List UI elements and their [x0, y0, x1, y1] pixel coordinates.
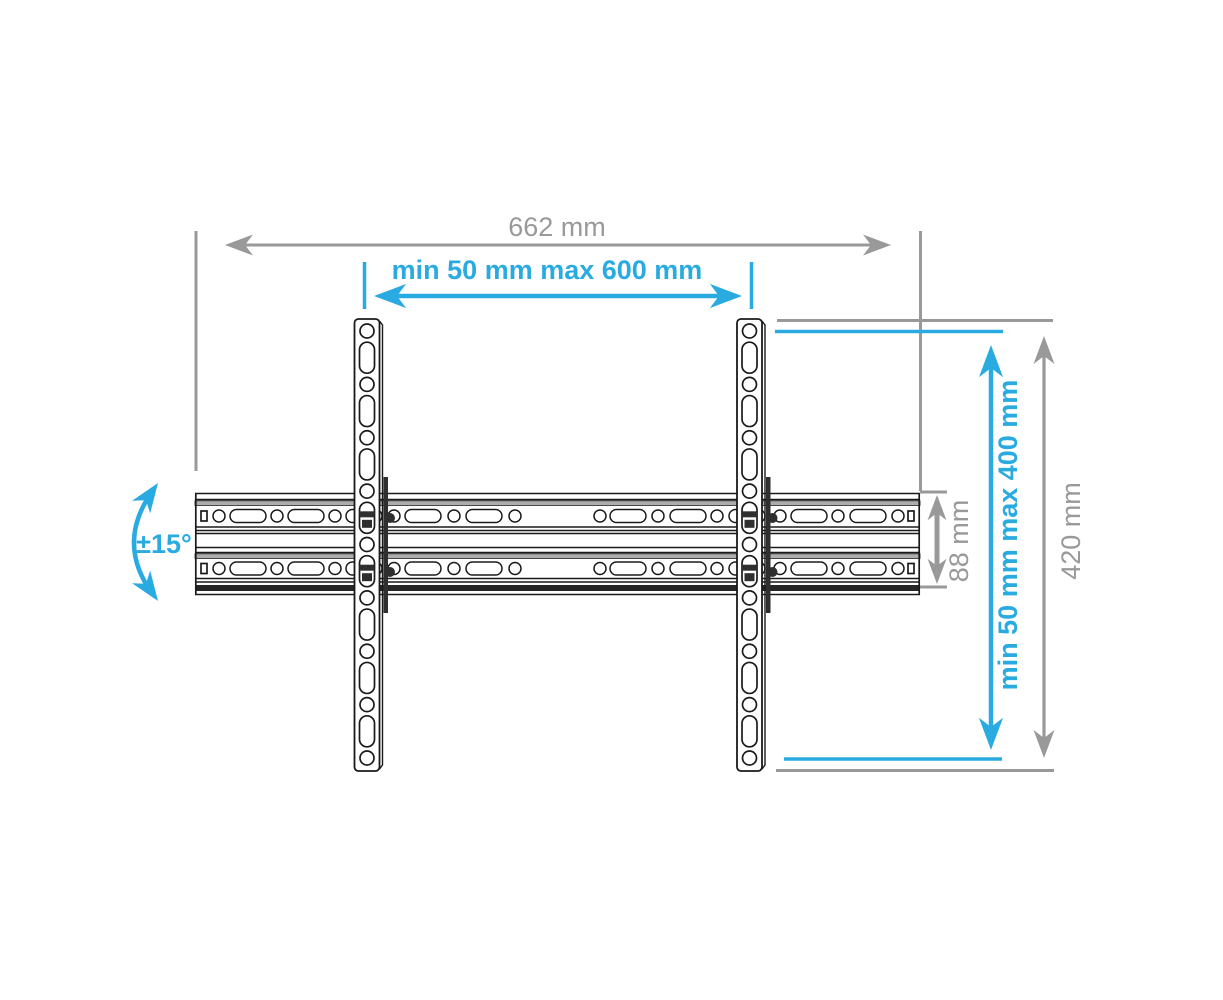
rail-hole: [448, 510, 460, 522]
rail-hole: [711, 563, 723, 575]
arm-slot-screw-bar: [742, 511, 757, 517]
rail-slot: [288, 562, 324, 575]
tilt-angle-label: ±15°: [136, 529, 192, 559]
arm-clip-strip: [766, 477, 771, 613]
mount-width-label: min 50 mm max 600 mm: [392, 255, 703, 285]
arm-hole: [743, 431, 757, 445]
rail-slot: [610, 562, 646, 575]
tilt-indicator: ±15°: [132, 477, 192, 608]
arm-slot-screw-nut: [745, 573, 755, 581]
arm-clip-nub: [768, 513, 778, 523]
arm-slot: [742, 609, 757, 640]
dim-total-width: 662 mm: [196, 212, 921, 491]
arm-slot: [360, 449, 375, 480]
rail-hole: [213, 563, 225, 575]
arm-hole: [360, 644, 374, 658]
arm-slot: [360, 396, 375, 427]
rail-slot: [230, 510, 266, 523]
rail-square-hole: [201, 564, 207, 574]
arm-hole: [360, 324, 374, 338]
arm-slot: [360, 556, 375, 587]
rail-slot: [466, 510, 502, 523]
rail-slot: [466, 562, 502, 575]
arm-hole: [360, 698, 374, 712]
arm-slot: [360, 662, 375, 693]
arm-slot: [742, 396, 757, 427]
rail-hole: [892, 510, 904, 522]
rail-bottom-lip: [195, 585, 920, 591]
arm-hole: [743, 538, 757, 552]
arm-hole: [360, 591, 374, 605]
arm-slot: [742, 502, 757, 533]
dim-plate-height: 88 mm: [920, 492, 974, 587]
arm-clip-nub: [385, 513, 395, 523]
rail-slot: [610, 510, 646, 523]
total-width-label: 662 mm: [508, 212, 606, 242]
rail-slot: [670, 510, 706, 523]
arm-clip-nub: [768, 567, 778, 577]
rail-hole: [594, 563, 606, 575]
arm-slot: [742, 662, 757, 693]
arm-slot-screw-nut: [362, 573, 372, 581]
arm-clip-strip: [384, 477, 389, 613]
arm-slot: [360, 342, 375, 373]
arm-slot: [742, 342, 757, 373]
arm-hole: [360, 751, 374, 765]
arm-hole: [743, 698, 757, 712]
rail-fold-strip-bottom: [195, 554, 920, 559]
arm-hole: [743, 377, 757, 391]
rail-hole: [509, 510, 521, 522]
rail-slot: [791, 562, 827, 575]
arm-slot-screw-bar: [360, 511, 375, 517]
arm-hole: [360, 484, 374, 498]
arm-hole: [360, 431, 374, 445]
rail-hole: [652, 510, 664, 522]
arm-slot: [360, 502, 375, 533]
rail-slot: [405, 510, 441, 523]
arm-slot-screw-nut: [745, 520, 755, 528]
rail-slot: [850, 562, 886, 575]
rail-hole: [832, 510, 844, 522]
rail-square-hole: [908, 511, 914, 521]
arm-slot: [360, 609, 375, 640]
mount-dimension-diagram: ±15° 662 mm min 50 mm max 600 mm 88 mm m…: [0, 0, 1223, 1000]
rail-slot: [288, 510, 324, 523]
rail-hole: [271, 563, 283, 575]
rail-hole: [509, 563, 521, 575]
rail-square-hole: [908, 564, 914, 574]
rail-hole: [329, 563, 341, 575]
arm-hole: [743, 484, 757, 498]
rail-hole: [213, 510, 225, 522]
arm-hole: [743, 751, 757, 765]
diagram-canvas: ±15° 662 mm min 50 mm max 600 mm 88 mm m…: [0, 0, 1223, 1000]
mount-height-label: min 50 mm max 400 mm: [993, 380, 1023, 691]
arm-hole: [360, 377, 374, 391]
rail-square-hole: [201, 511, 207, 521]
arm-hole: [743, 644, 757, 658]
tilt-arrowhead-down: [132, 571, 167, 608]
rail-slot: [791, 510, 827, 523]
rail-hole: [271, 510, 283, 522]
rail-hole: [448, 563, 460, 575]
arm-slot: [742, 449, 757, 480]
plate-height-label: 88 mm: [944, 500, 974, 583]
rail-fold-strip-top: [195, 501, 920, 506]
arm-slot: [360, 716, 375, 747]
rail-hole: [711, 510, 723, 522]
dim-mount-width: min 50 mm max 600 mm: [365, 255, 752, 309]
arm-slot: [742, 556, 757, 587]
wall-plate-body: [195, 493, 920, 595]
wall-plate: [195, 493, 920, 595]
arm-slot-screw-nut: [362, 520, 372, 528]
arm-slot: [742, 716, 757, 747]
arm-slot-screw-bar: [360, 565, 375, 571]
arm-hole: [743, 324, 757, 338]
arm-slot-screw-bar: [742, 565, 757, 571]
arm-hole: [743, 591, 757, 605]
rail-hole: [594, 510, 606, 522]
rail-hole: [832, 563, 844, 575]
rail-slot: [405, 562, 441, 575]
rail-slot: [850, 510, 886, 523]
tilt-arrowhead-up: [132, 477, 167, 514]
arm-clip-nub: [385, 567, 395, 577]
rail-hole: [329, 510, 341, 522]
rail-hole: [652, 563, 664, 575]
arm-hole: [360, 538, 374, 552]
rail-slot: [230, 562, 266, 575]
rail-hole: [892, 563, 904, 575]
rail-slot: [670, 562, 706, 575]
total-height-label: 420 mm: [1056, 482, 1086, 580]
